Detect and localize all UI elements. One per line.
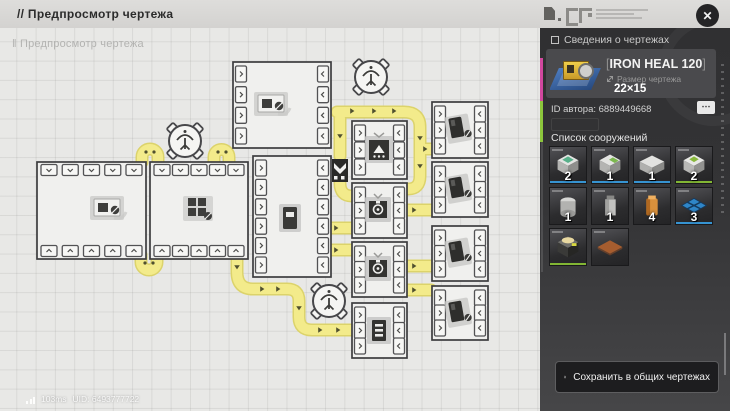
dot-decor xyxy=(558,18,561,21)
author-id: ID автора: 6889449668 xyxy=(551,104,651,115)
top-bar: // Предпросмотр чертежа ✕ xyxy=(0,0,730,28)
structures-grid: 21121143 xyxy=(549,146,721,267)
structure-tile[interactable] xyxy=(591,228,629,266)
tile-category-edge xyxy=(592,263,628,266)
structure-count: 1 xyxy=(550,210,586,224)
scroll-indicator-magenta xyxy=(540,58,543,101)
save-button-label: Сохранить в общих чертежах xyxy=(573,372,710,383)
proc-machine-icon xyxy=(90,196,126,220)
structure-count: 1 xyxy=(592,169,628,183)
scrollbar-thumb[interactable] xyxy=(724,333,726,375)
decor-line xyxy=(596,13,634,15)
blueprint-preview-screen: ‖ Предпросмотр чертежа // Предпросмотр ч… xyxy=(0,0,730,411)
power-pole-icon xyxy=(311,283,348,320)
structure-tile[interactable] xyxy=(549,228,587,266)
structure-tile[interactable]: 1 xyxy=(591,187,629,225)
status-bar: 103ms UID: 6493777722 xyxy=(26,394,139,404)
power-unit-icon xyxy=(550,231,586,261)
structure-tile[interactable]: 1 xyxy=(633,146,671,184)
structures-list-title: Список сооружений xyxy=(551,132,647,144)
ghost-pill-decor xyxy=(551,118,599,131)
blueprint-info-card: [IRON HEAL 120] Размер чертежа 22×15 xyxy=(546,49,716,98)
blueprint-drawing xyxy=(0,28,540,411)
structure-count: 1 xyxy=(592,210,628,224)
furnace-machine-icon xyxy=(365,133,393,163)
splitter-icon xyxy=(332,159,348,182)
structure-tile[interactable]: 1 xyxy=(591,146,629,184)
panel-section-title: Сведения о чертежах xyxy=(564,34,669,46)
page-title: // Предпросмотр чертежа xyxy=(17,7,173,21)
canvas-watermark: ‖ Предпросмотр чертежа xyxy=(12,38,144,50)
info-panel: Сведения о чертежах [IRON HEAL 120] Разм… xyxy=(540,28,730,411)
structure-count: 1 xyxy=(634,169,670,183)
structure-count: 2 xyxy=(676,169,712,183)
mixer-machine-icon xyxy=(365,253,391,281)
boxes-machine-icon xyxy=(183,196,213,221)
foundation-pad-icon xyxy=(592,231,628,261)
blueprint-canvas[interactable]: ‖ Предпросмотр чертежа xyxy=(0,28,540,411)
scroll-indicator-green xyxy=(540,101,543,142)
ping-value: 103ms xyxy=(41,394,67,404)
more-options-button[interactable]: ⋯ xyxy=(697,101,715,114)
decor-line xyxy=(596,17,642,19)
resize-icon xyxy=(606,75,614,83)
section-bullet-icon xyxy=(551,36,559,44)
structure-count: 3 xyxy=(676,210,712,224)
uid-value: UID: 6493777722 xyxy=(73,394,140,404)
close-button[interactable]: ✕ xyxy=(696,4,719,27)
structure-count: 4 xyxy=(634,210,670,224)
proc-machine-icon xyxy=(254,92,290,116)
panel-header: Сведения о чертежах xyxy=(551,34,669,46)
battery-machine-icon xyxy=(367,317,391,344)
structure-tile[interactable]: 4 xyxy=(633,187,671,225)
blueprint-thumbnail xyxy=(550,54,602,93)
bracket-logo-icon xyxy=(579,8,592,23)
power-pole-icon xyxy=(353,59,390,96)
network-signal-icon xyxy=(26,397,35,404)
decor-line xyxy=(596,9,648,11)
document-icon xyxy=(544,7,555,20)
scroll-track xyxy=(541,142,543,272)
tile-category-edge xyxy=(550,263,586,266)
power-pole-icon xyxy=(167,123,204,160)
blueprint-name: [IRON HEAL 120] xyxy=(606,57,706,71)
vertical-decor-marks xyxy=(721,64,724,214)
structure-tile[interactable]: 2 xyxy=(549,146,587,184)
save-document-icon xyxy=(564,369,566,385)
blueprint-size-value: 22×15 xyxy=(614,83,646,95)
device-machine-icon xyxy=(279,204,301,232)
save-to-shared-button[interactable]: Сохранить в общих чертежах xyxy=(556,362,718,392)
bracket-logo-icon xyxy=(566,8,578,26)
structure-tile[interactable]: 2 xyxy=(675,146,713,184)
structure-count: 2 xyxy=(550,169,586,183)
structure-tile[interactable]: 1 xyxy=(549,187,587,225)
mixer-machine-icon xyxy=(365,194,391,222)
structure-tile[interactable]: 3 xyxy=(675,187,713,225)
